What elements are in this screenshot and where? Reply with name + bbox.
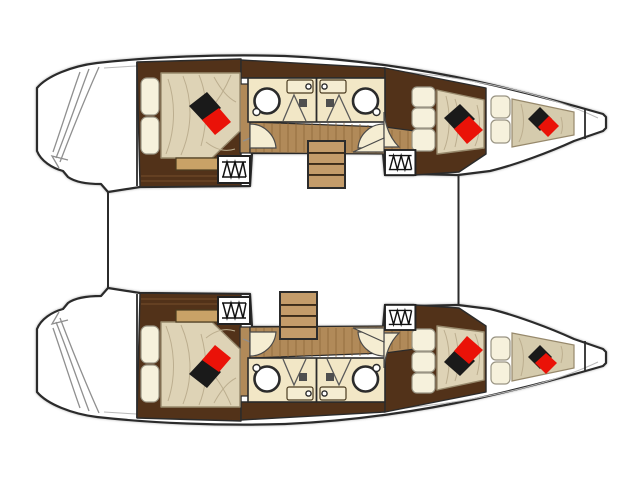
stair-tread	[280, 305, 317, 316]
stair-tread	[308, 141, 345, 153]
stair-tread	[280, 327, 317, 339]
floor-plan-canvas	[0, 0, 640, 480]
stair-tread	[308, 164, 345, 175]
stair-tread	[280, 292, 317, 305]
catamaran-floor-plan	[0, 0, 640, 480]
stair-tread	[308, 175, 345, 188]
companionway-stairs-upper	[308, 141, 345, 188]
stair-tread	[280, 316, 317, 327]
stair-tread	[308, 153, 345, 164]
companionway-stairs-lower	[280, 292, 317, 339]
lower-hull	[37, 288, 606, 425]
